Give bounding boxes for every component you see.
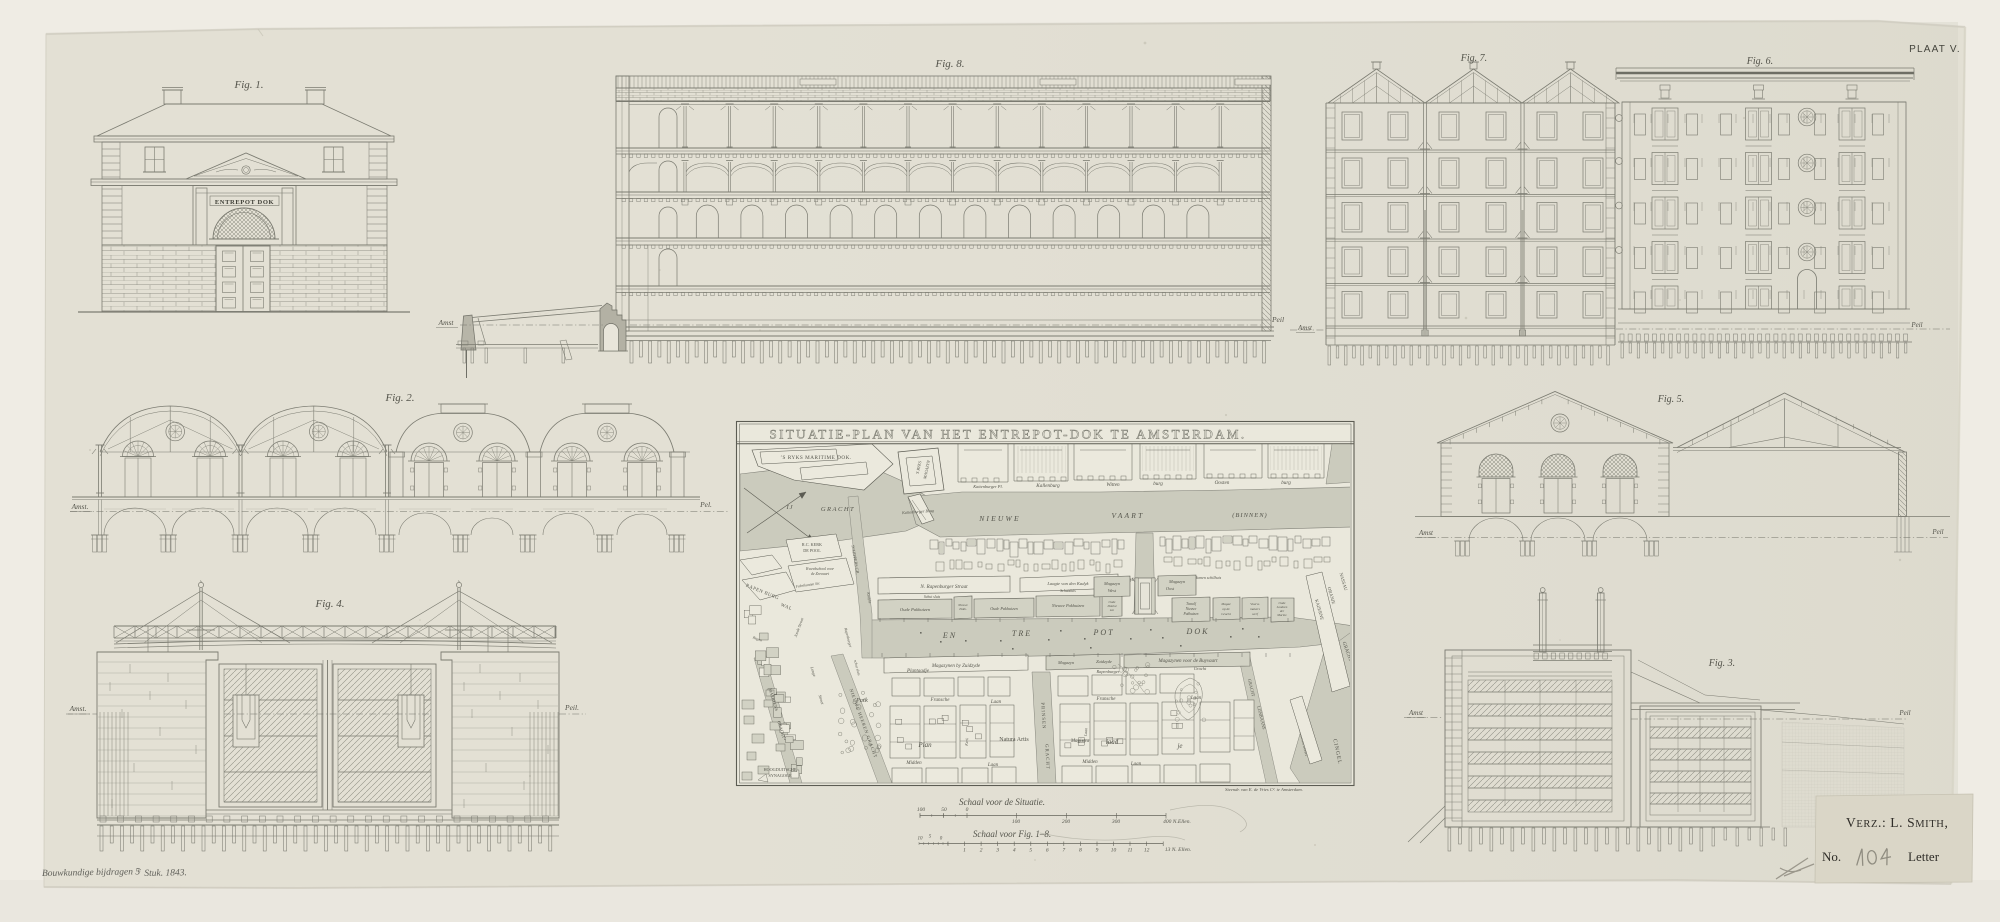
svg-text:300: 300 [1111, 819, 1121, 825]
svg-text:PLAAT V.: PLAAT V. [1909, 44, 1961, 55]
svg-text:GRACHT: GRACHT [821, 506, 855, 513]
svg-text:Laan: Laan [1190, 696, 1202, 701]
svg-text:Steendr. van E. de Vries C². t: Steendr. van E. de Vries C². te Amsterda… [1225, 787, 1303, 792]
svg-text:POT: POT [1092, 628, 1114, 637]
svg-text:je: je [1176, 742, 1182, 750]
svg-text:1: 1 [963, 848, 966, 854]
svg-text:Laan: Laan [1130, 762, 1142, 767]
svg-text:8: 8 [1079, 848, 1082, 854]
svg-text:Twaalf: Twaalf [1186, 602, 1197, 606]
svg-text:Schaal voor Fig. 1–8.: Schaal voor Fig. 1–8. [973, 829, 1051, 839]
svg-text:12: 12 [1144, 848, 1150, 854]
svg-text:EN: EN [942, 631, 957, 640]
svg-text:SYNAGOGE: SYNAGOGE [768, 773, 791, 778]
svg-text:Pakh.: Pakh. [958, 607, 967, 611]
svg-text:Fig. 8.: Fig. 8. [934, 58, 964, 70]
svg-text:Magazynen by Zuidzyde: Magazynen by Zuidzyde [931, 664, 981, 669]
svg-text:Fransche: Fransche [1096, 697, 1117, 702]
svg-text:werf: werf [1252, 612, 1259, 616]
svg-text:Midden: Midden [1081, 760, 1098, 765]
svg-text:DOK: DOK [1186, 627, 1210, 636]
svg-text:Bomen schilhuis: Bomen schilhuis [1195, 575, 1222, 580]
svg-text:5: 5 [1029, 848, 1032, 854]
svg-text:3: 3 [995, 848, 999, 854]
svg-text:Oude Pakhuizen: Oude Pakhuizen [900, 607, 931, 612]
svg-text:Magaz: Magaz [1220, 602, 1231, 606]
svg-text:IJ: IJ [785, 504, 793, 511]
svg-text:Plan: Plan [917, 741, 932, 749]
svg-text:13 N. Ellen.: 13 N. Ellen. [1165, 847, 1191, 853]
svg-text:burg: burg [1281, 480, 1291, 486]
svg-text:VAART: VAART [1112, 511, 1145, 520]
svg-text:Bouwkundige bijdragen 5: Bouwkundige bijdragen 5 [42, 867, 141, 879]
svg-text:400 N.Ellen.: 400 N.Ellen. [1163, 818, 1191, 825]
svg-text:Amst.: Amst. [69, 704, 87, 713]
svg-text:Pel.: Pel. [699, 500, 712, 509]
svg-text:Pakhuizen: Pakhuizen [1183, 612, 1199, 616]
svg-text:SITUATIE-PLAN VAN HET ENTREPOT: SITUATIE-PLAN VAN HET ENTREPOT-DOK TE AM… [769, 427, 1246, 442]
svg-text:Amst: Amst [1408, 709, 1424, 717]
svg-text:makers: makers [1250, 607, 1260, 611]
svg-text:Peil: Peil [1910, 321, 1922, 329]
svg-text:Laan: Laan [987, 763, 999, 768]
svg-text:burg: burg [1153, 481, 1163, 487]
svg-text:Oude Pakhuizen: Oude Pakhuizen [990, 606, 1018, 611]
svg-text:Magistra: Magistra [1070, 739, 1090, 744]
svg-text:Gracht: Gracht [1194, 666, 1207, 671]
svg-text:(BINNEN): (BINNEN) [1232, 512, 1267, 519]
svg-text:Midden: Midden [905, 761, 922, 766]
svg-text:West: West [1108, 588, 1117, 593]
svg-text:Peil: Peil [1271, 315, 1284, 324]
svg-text:Rapenburger: Rapenburger [1095, 669, 1119, 674]
svg-text:TRE: TRE [1012, 629, 1032, 638]
svg-text:Schaal voor de Situatie.: Schaal voor de Situatie. [959, 797, 1045, 807]
svg-text:10: 10 [918, 837, 924, 842]
svg-text:Oost: Oost [1166, 586, 1175, 591]
svg-text:Magazyn: Magazyn [1057, 660, 1075, 665]
svg-text:e: e [138, 867, 141, 874]
svg-text:Kweekschool voor: Kweekschool voor [805, 567, 834, 571]
svg-text:ENTREPOT DOK: ENTREPOT DOK [215, 199, 274, 206]
svg-text:Nieuwe Pakhuizen: Nieuwe Pakhuizen [1051, 603, 1085, 608]
svg-text:N. Rapenburger Straat: N. Rapenburger Straat [919, 584, 968, 590]
svg-text:Letter: Letter [1908, 849, 1940, 864]
svg-text:laad: laad [1106, 738, 1119, 746]
svg-text:Amst.: Amst. [71, 502, 89, 511]
svg-text:Fig. 2.: Fig. 2. [384, 392, 414, 404]
svg-text:Magazyn: Magazyn [1168, 579, 1186, 584]
svg-text:Gracht: Gracht [1221, 612, 1232, 616]
svg-text:Magazynen voor de Buyvaart: Magazynen voor de Buyvaart [1157, 659, 1218, 664]
svg-text:Peil.: Peil. [564, 703, 579, 712]
svg-text:HOOGDUITSCHE: HOOGDUITSCHE [764, 767, 797, 772]
svg-text:Nieuwe: Nieuwe [1185, 607, 1197, 611]
svg-text:Amst: Amst [1297, 324, 1313, 332]
svg-text:Schut sluis: Schut sluis [924, 595, 941, 599]
svg-text:Witten: Witten [1106, 482, 1120, 488]
svg-text:10: 10 [1111, 848, 1117, 854]
svg-text:Peil: Peil [1931, 528, 1943, 536]
svg-text:Fransche: Fransche [930, 698, 951, 703]
svg-text:No.: No. [1822, 849, 1841, 864]
svg-text:Amst: Amst [1418, 529, 1434, 537]
svg-text:11: 11 [1127, 848, 1132, 854]
svg-text:100: 100 [917, 807, 926, 813]
svg-text:9: 9 [1096, 848, 1099, 854]
svg-text:’S RYKS MARITIME DOK.: ’S RYKS MARITIME DOK. [780, 455, 851, 461]
svg-text:Schutsluis: Schutsluis [1060, 589, 1076, 593]
svg-text:Kallenburg: Kallenburg [1035, 483, 1060, 489]
svg-text:Marine: Marine [1276, 613, 1287, 617]
svg-text:Kerk: Kerk [964, 738, 970, 747]
svg-text:Fig. 4.: Fig. 4. [314, 598, 344, 610]
svg-text:Laan: Laan [1083, 728, 1089, 738]
svg-text:Vuurw.: Vuurw. [1250, 602, 1260, 606]
svg-text:0: 0 [966, 807, 969, 813]
svg-text:7: 7 [1062, 848, 1065, 854]
svg-text:4: 4 [1013, 847, 1016, 854]
svg-text:Fig. 6.: Fig. 6. [1746, 56, 1773, 67]
svg-text:Laagte van den Kadyk: Laagte van den Kadyk [1046, 581, 1089, 586]
svg-text:Laan: Laan [990, 700, 1002, 705]
svg-text:Oosten: Oosten [1215, 480, 1230, 486]
svg-text:Amst: Amst [438, 318, 455, 327]
svg-text:NIEUWE: NIEUWE [978, 514, 1021, 523]
svg-text:zen: zen [1109, 608, 1115, 612]
svg-text:200: 200 [1062, 819, 1071, 825]
svg-text:Fig. 3.: Fig. 3. [1708, 658, 1735, 669]
svg-text:R.C. KERK: R.C. KERK [802, 542, 822, 547]
svg-text:Stuk. 1843.: Stuk. 1843. [142, 868, 187, 879]
svg-text:DE POOL: DE POOL [803, 548, 821, 553]
svg-text:Zuidzyde: Zuidzyde [1096, 659, 1112, 664]
svg-text:Natura Artis: Natura Artis [999, 737, 1029, 743]
svg-text:100: 100 [1012, 819, 1021, 825]
svg-text:50: 50 [941, 807, 947, 813]
svg-text:Fig. 5.: Fig. 5. [1657, 394, 1684, 405]
svg-text:Kattenburger Pl.: Kattenburger Pl. [972, 484, 1003, 489]
svg-text:6: 6 [1046, 848, 1049, 854]
svg-text:Plantaadje: Plantaadje [906, 669, 930, 674]
svg-text:Peil: Peil [1898, 709, 1910, 717]
svg-text:Magazyn: Magazyn [1103, 581, 1121, 586]
svg-text:Fig. 1.: Fig. 1. [233, 79, 263, 91]
svg-text:2: 2 [980, 848, 983, 854]
svg-text:op de: op de [1222, 607, 1230, 611]
svg-text:de Zeevaart: de Zeevaart [811, 572, 830, 576]
